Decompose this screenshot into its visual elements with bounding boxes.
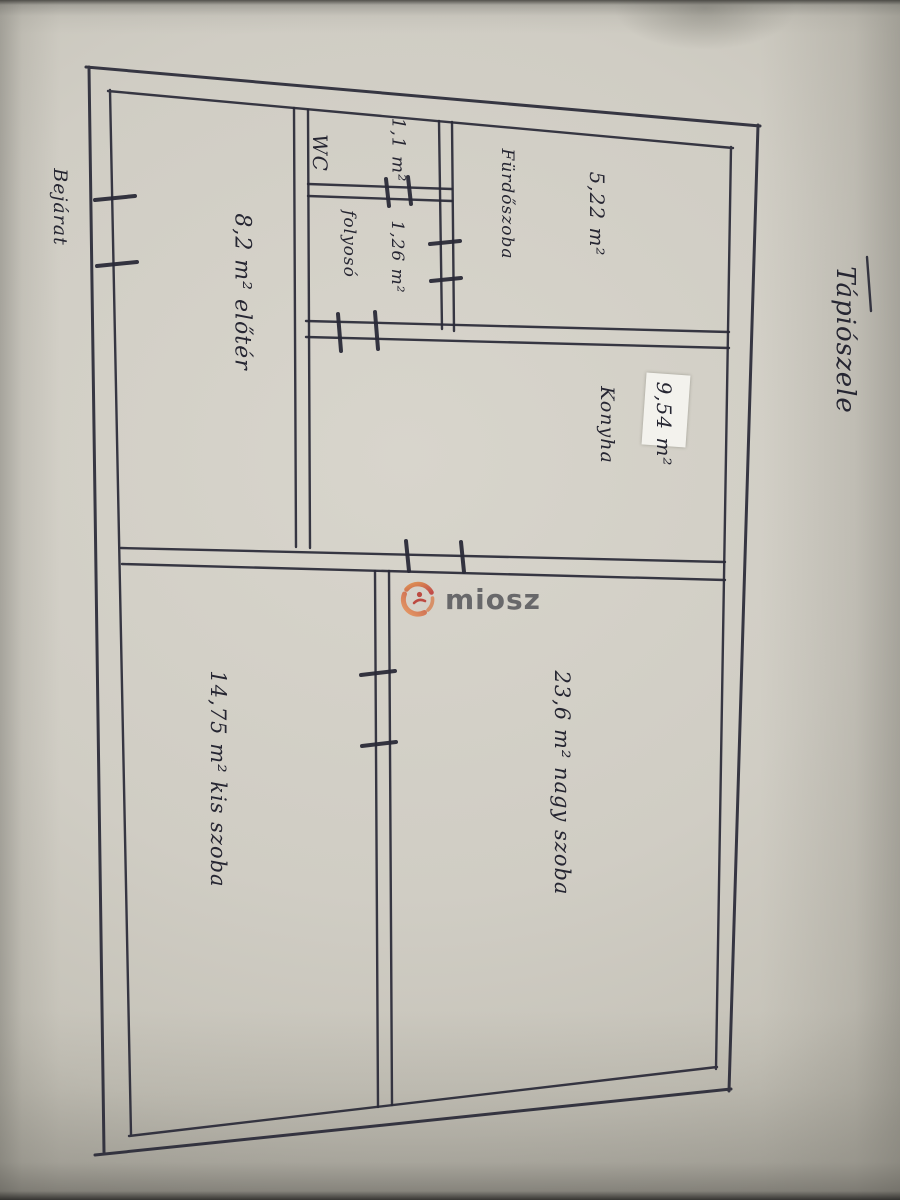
wall-rooms-divider xyxy=(375,571,392,1107)
wall-wc-south xyxy=(308,184,452,201)
title-underline xyxy=(867,257,871,311)
area-label-wc: 1,1 m² xyxy=(388,118,409,183)
wall-kitchen-north xyxy=(306,321,729,348)
room-label-hallway: folyosó xyxy=(339,210,359,278)
title-label: Tápiószele xyxy=(830,266,860,414)
room-label-bathroom: Fürdőszoba xyxy=(497,149,517,260)
wall-eloter-east xyxy=(294,108,310,548)
miosz-logo-icon xyxy=(398,579,438,619)
room-label-wc: WC xyxy=(308,134,332,172)
door-ticks-bathroom xyxy=(430,241,461,281)
room-label-small-room: 14,75 m² kis szoba xyxy=(206,670,230,887)
room-label-kitchen: Konyha xyxy=(596,386,618,464)
watermark: miosz xyxy=(398,576,541,622)
floorplan-photo: Tápiószele Bejárat 8,2 m² előtér WC 1,1 … xyxy=(0,0,900,1200)
area-label-bathroom: 5,22 m² xyxy=(585,172,609,257)
entrance-label: Bejárat xyxy=(49,168,71,245)
door-ticks-entrance xyxy=(95,196,137,266)
door-ticks-kitchen xyxy=(338,312,378,351)
room-label-eloter: 8,2 m² előtér xyxy=(230,213,255,370)
area-label-kitchen: 9,54 m² xyxy=(652,382,676,467)
wall-bathroom-west xyxy=(439,121,454,331)
room-label-big-room: 23,6 m² nagy szoba xyxy=(550,671,574,896)
area-label-hallway: 1,26 m² xyxy=(387,220,407,293)
watermark-brand-text: miosz xyxy=(445,583,541,616)
